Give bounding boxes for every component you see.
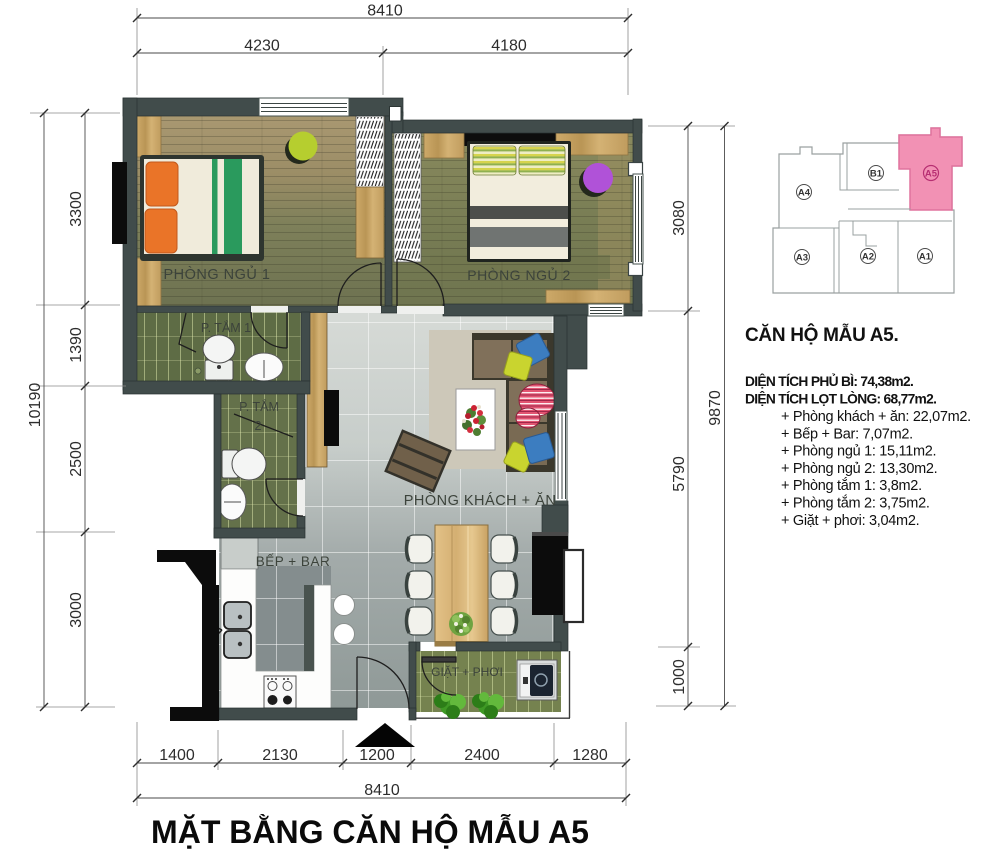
svg-text:BẾP + BAR: BẾP + BAR — [256, 554, 330, 569]
svg-text:A2: A2 — [862, 252, 874, 263]
svg-text:1280: 1280 — [572, 747, 608, 764]
svg-text:2500: 2500 — [68, 441, 85, 477]
svg-text:+ Phòng ngủ 2: 13,30m2.: + Phòng ngủ 2: 13,30m2. — [781, 461, 937, 477]
svg-text:+ Bếp + Bar: 7,07m2.: + Bếp + Bar: 7,07m2. — [781, 426, 913, 442]
svg-text:MẶT BẰNG CĂN HỘ MẪU A5: MẶT BẰNG CĂN HỘ MẪU A5 — [151, 814, 589, 850]
svg-text:P. TẮM: P. TẮM — [239, 399, 279, 414]
svg-text:B1: B1 — [870, 169, 883, 180]
svg-text:2: 2 — [255, 419, 262, 433]
svg-text:8410: 8410 — [367, 3, 403, 20]
svg-text:4230: 4230 — [244, 38, 280, 55]
svg-text:1200: 1200 — [359, 747, 395, 764]
svg-text:PHÒNG NGỦ 1: PHÒNG NGỦ 1 — [163, 265, 270, 283]
svg-text:5790: 5790 — [671, 456, 688, 492]
svg-text:PHÒNG KHÁCH + ĂN: PHÒNG KHÁCH + ĂN — [404, 492, 557, 509]
svg-text:+ Phòng ngủ 1: 15,11m2.: + Phòng ngủ 1: 15,11m2. — [781, 444, 936, 460]
svg-text:DIỆN TÍCH LỌT LÒNG: 68,77m2.: DIỆN TÍCH LỌT LÒNG: 68,77m2. — [745, 390, 936, 407]
svg-text:3000: 3000 — [68, 592, 85, 628]
svg-text:+ Phòng khách + ăn: 22,07m2.: + Phòng khách + ăn: 22,07m2. — [781, 409, 971, 425]
svg-text:A3: A3 — [796, 253, 808, 264]
svg-text:A1: A1 — [919, 252, 932, 263]
svg-text:CĂN HỘ MẪU A5.: CĂN HỘ MẪU A5. — [745, 324, 898, 346]
svg-text:3300: 3300 — [68, 191, 85, 227]
svg-text:1390: 1390 — [68, 327, 85, 363]
svg-text:PHÒNG NGỦ 2: PHÒNG NGỦ 2 — [467, 266, 571, 283]
svg-text:8410: 8410 — [364, 782, 400, 799]
svg-text:A4: A4 — [798, 188, 811, 199]
svg-text:+ Phòng tắm 1: 3,8m2.: + Phòng tắm 1: 3,8m2. — [781, 477, 922, 494]
svg-text:9870: 9870 — [707, 390, 724, 426]
svg-text:DIỆN TÍCH PHỦ BÌ: 74,38m2.: DIỆN TÍCH PHỦ BÌ: 74,38m2. — [745, 372, 913, 389]
svg-text:4180: 4180 — [491, 38, 527, 55]
svg-text:P. TẮM 1: P. TẮM 1 — [201, 320, 251, 335]
svg-text:A5: A5 — [925, 169, 938, 180]
svg-text:2130: 2130 — [262, 747, 298, 764]
svg-text:GIẶT + PHƠI: GIẶT + PHƠI — [431, 664, 503, 679]
svg-text:2400: 2400 — [464, 747, 500, 764]
svg-text:10190: 10190 — [27, 383, 44, 428]
svg-text:1000: 1000 — [671, 659, 688, 695]
svg-text:3080: 3080 — [671, 200, 688, 236]
svg-text:1400: 1400 — [159, 747, 195, 764]
svg-text:+ Giặt + phơi: 3,04m2.: + Giặt + phơi: 3,04m2. — [781, 513, 919, 529]
svg-text:+ Phòng tắm 2: 3,75m2.: + Phòng tắm 2: 3,75m2. — [781, 495, 930, 512]
